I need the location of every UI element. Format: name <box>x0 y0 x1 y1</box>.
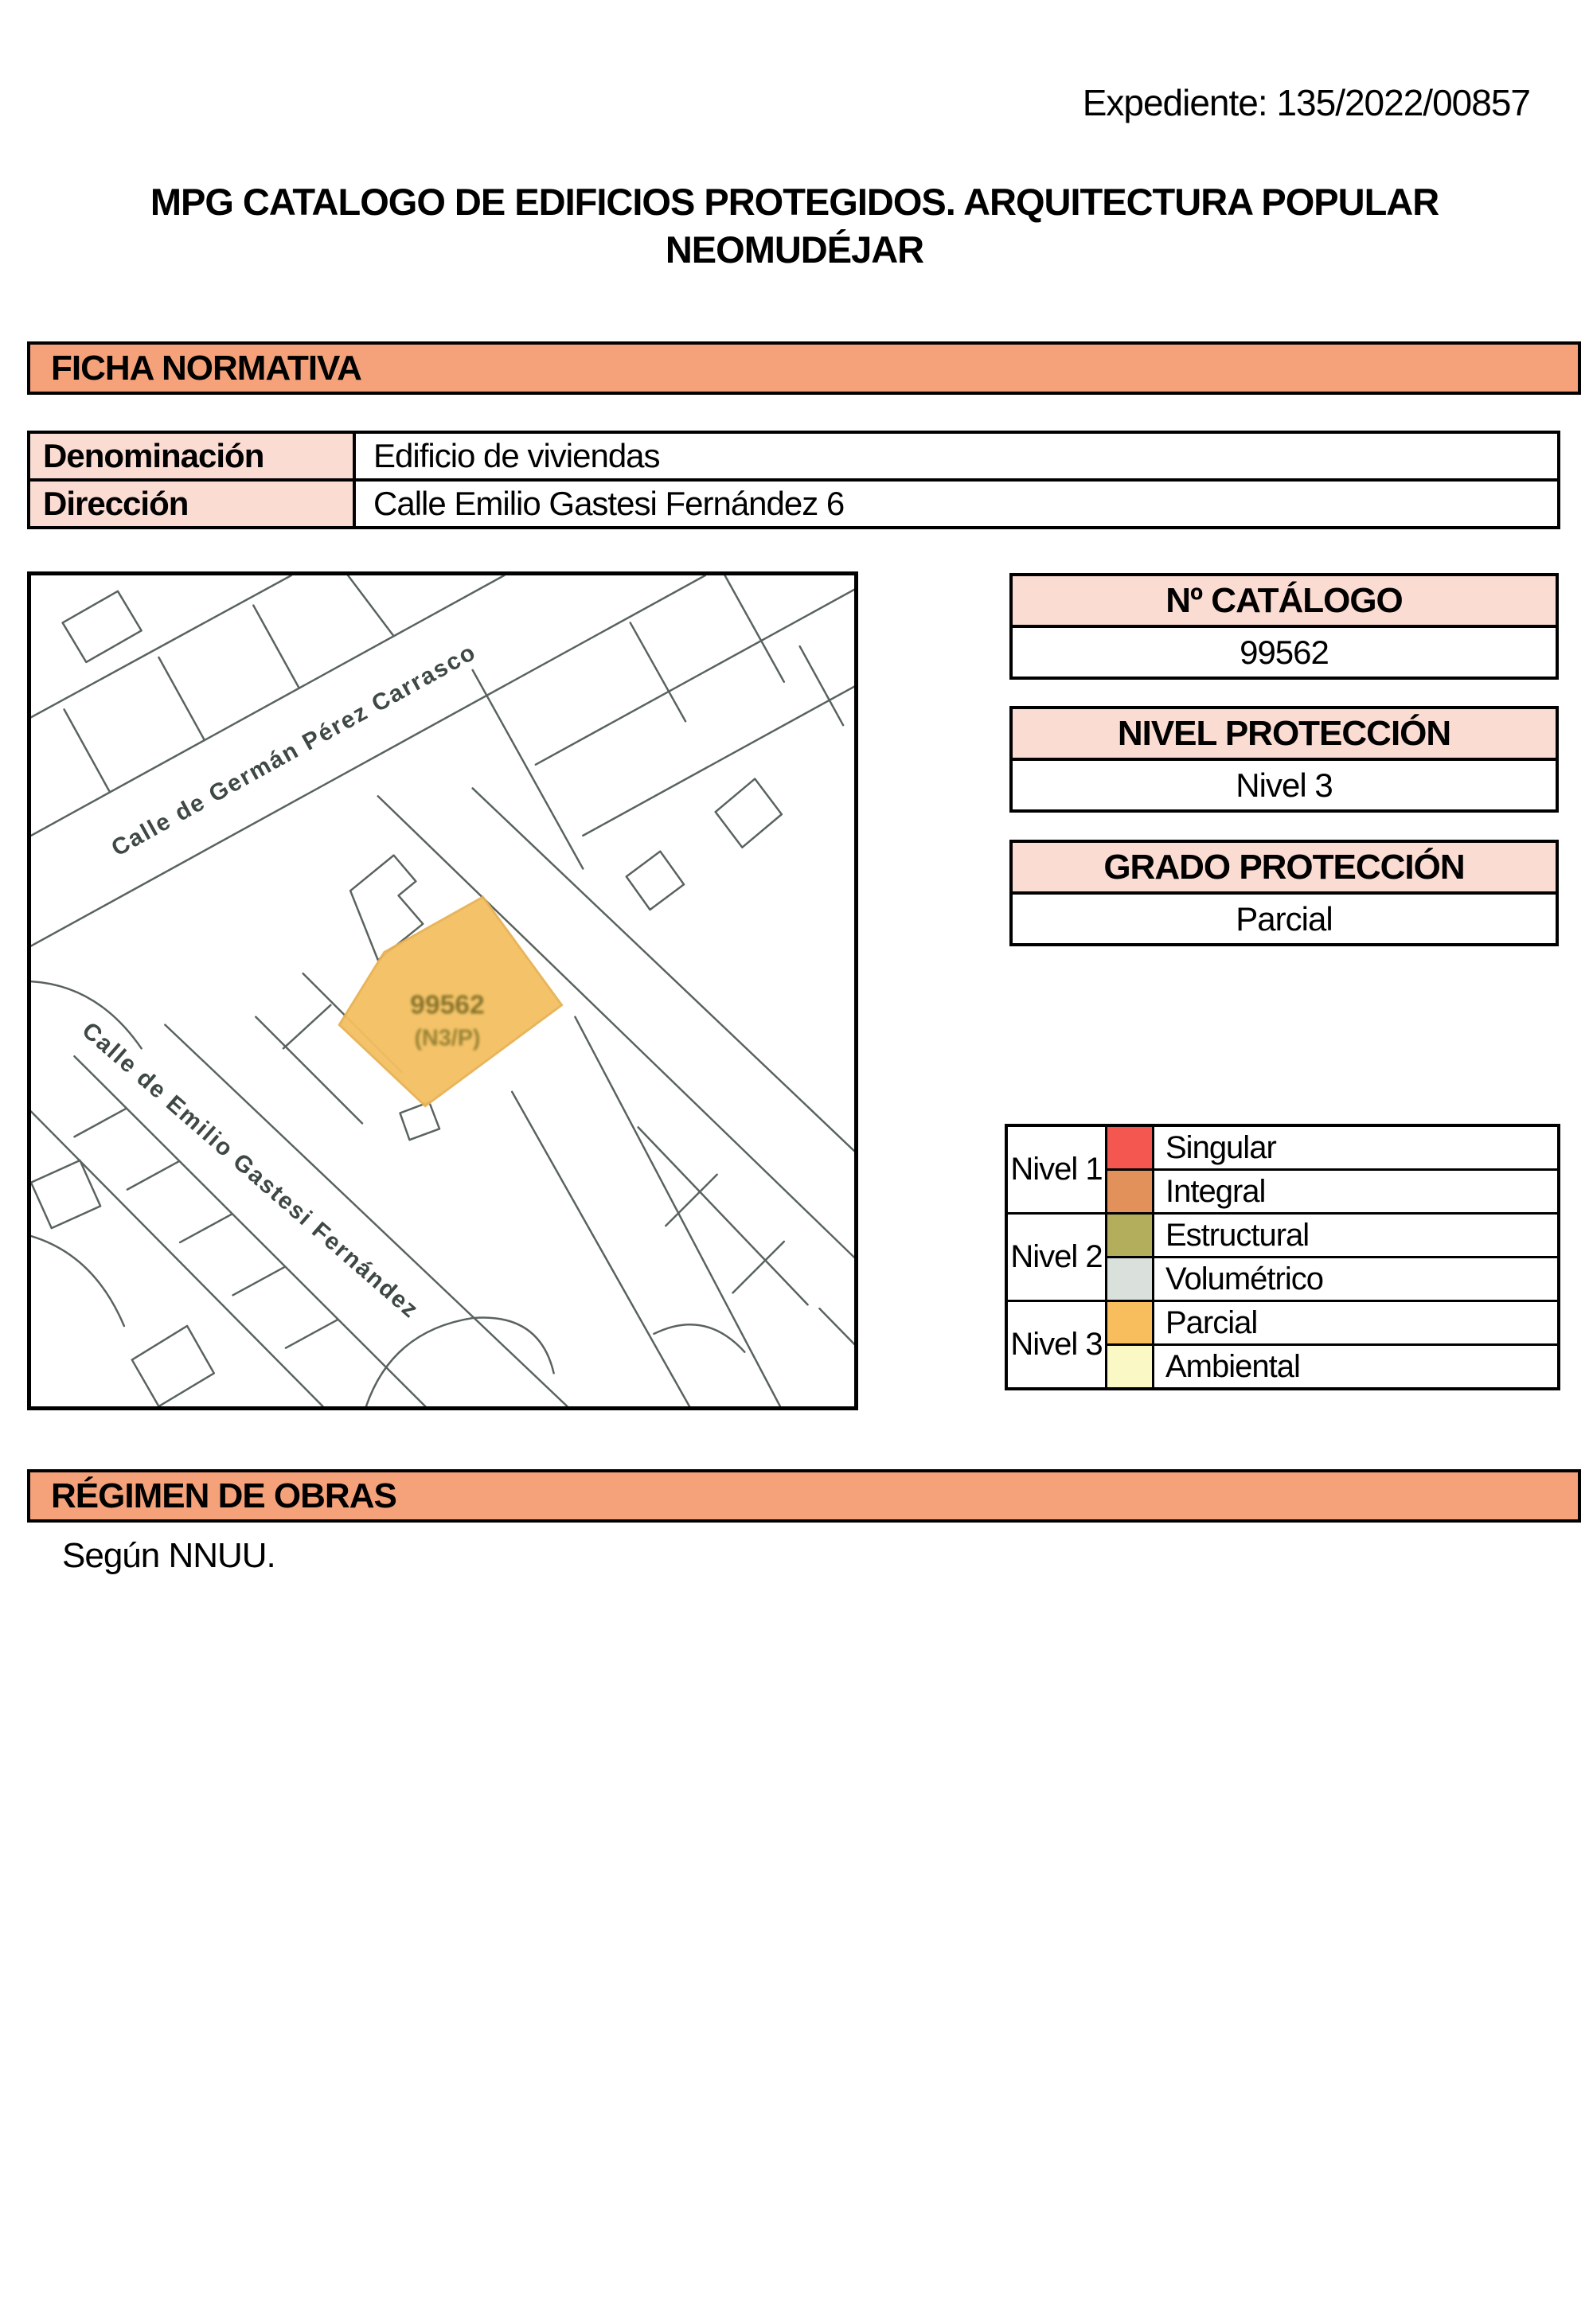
legend-label-ambiental: Ambiental <box>1154 1346 1557 1387</box>
legend-swatch-volumetrico <box>1107 1258 1152 1300</box>
legend-swatch-parcial <box>1107 1302 1152 1343</box>
street-label-emilio-gastesi-fernandez: Calle de Emilio Gastesi Fernández <box>77 1017 424 1324</box>
parcel-protection-sublabel: (N3/P) <box>414 1025 480 1051</box>
legend-swatch-ambiental <box>1107 1346 1152 1387</box>
legend-swatch-singular <box>1107 1127 1152 1168</box>
protection-level-box: NIVEL PROTECCIÓN Nivel 3 <box>1009 706 1559 813</box>
ficha-normativa-page: Expediente: 135/2022/00857 MPG CATALOGO … <box>0 0 1589 2324</box>
protection-legend: Nivel 1 Singular Integral Nivel 2 Estruc… <box>1005 1124 1560 1390</box>
direccion-label: Dirección <box>30 482 353 526</box>
ficha-normativa-header-label: FICHA NORMATIVA <box>51 349 361 388</box>
direccion-value: Calle Emilio Gastesi Fernández 6 <box>356 482 1557 526</box>
legend-level-3: Nivel 3 <box>1008 1302 1105 1387</box>
legend-swatch-integral <box>1107 1171 1152 1212</box>
legend-level-1: Nivel 1 <box>1008 1127 1105 1212</box>
page-title: MPG CATALOGO DE EDIFICIOS PROTEGIDOS. AR… <box>118 178 1471 274</box>
legend-label-parcial: Parcial <box>1154 1302 1557 1343</box>
parcel-number-label: 99562 <box>410 991 485 1020</box>
catalog-number-box: Nº CATÁLOGO 99562 <box>1009 573 1559 680</box>
denominacion-value: Edificio de viviendas <box>356 434 1557 478</box>
protection-level-header: NIVEL PROTECCIÓN <box>1013 709 1556 761</box>
legend-label-singular: Singular <box>1154 1127 1557 1168</box>
legend-label-volumetrico: Volumétrico <box>1154 1258 1557 1300</box>
ficha-normativa-header-bar: FICHA NORMATIVA <box>27 341 1581 395</box>
cadastral-map-drawing: 99562 (N3/P) Calle de Germán Pérez Carra… <box>31 575 854 1406</box>
cadastral-map: 99562 (N3/P) Calle de Germán Pérez Carra… <box>27 571 858 1410</box>
protection-grade-header: GRADO PROTECCIÓN <box>1013 843 1556 895</box>
legend-swatch-estructural <box>1107 1215 1152 1256</box>
denominacion-label: Denominación <box>30 434 353 478</box>
protection-grade-value: Parcial <box>1013 895 1556 943</box>
protection-level-value: Nivel 3 <box>1013 761 1556 809</box>
legend-label-estructural: Estructural <box>1154 1215 1557 1256</box>
street-label-german-perez-carrasco: Calle de Germán Pérez Carrasco <box>107 638 480 861</box>
regimen-de-obras-header-label: RÉGIMEN DE OBRAS <box>51 1476 396 1516</box>
legend-level-2: Nivel 2 <box>1008 1215 1105 1300</box>
expediente-number: Expediente: 135/2022/00857 <box>1083 81 1530 124</box>
regimen-de-obras-header-bar: RÉGIMEN DE OBRAS <box>27 1469 1581 1523</box>
catalog-number-value: 99562 <box>1013 628 1556 677</box>
catalog-number-header: Nº CATÁLOGO <box>1013 576 1556 628</box>
regimen-de-obras-body: Según NNUU. <box>62 1536 275 1576</box>
protection-grade-box: GRADO PROTECCIÓN Parcial <box>1009 840 1559 946</box>
legend-label-integral: Integral <box>1154 1171 1557 1212</box>
building-info-table: Denominación Edificio de viviendas Direc… <box>27 431 1560 529</box>
